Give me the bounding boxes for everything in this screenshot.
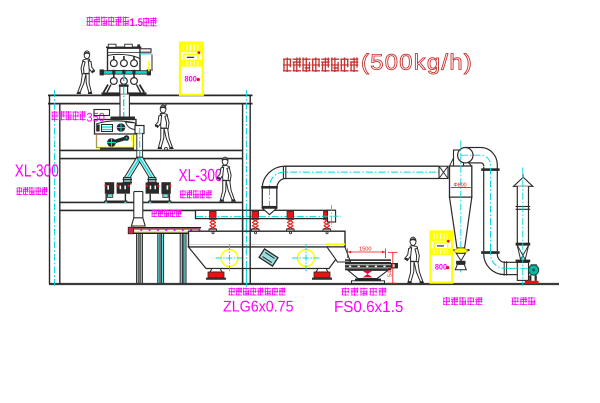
svg-text:350: 350 [87, 111, 105, 125]
svg-text:ZLG6x0.75: ZLG6x0.75 [223, 299, 294, 316]
svg-text:(500kg/h): (500kg/h) [361, 50, 473, 75]
svg-text:800: 800 [185, 74, 198, 83]
svg-text:800: 800 [435, 263, 448, 272]
svg-text:XL-300: XL-300 [15, 161, 59, 181]
svg-text:FS0.6x1.5: FS0.6x1.5 [334, 299, 403, 316]
svg-text:XL-300: XL-300 [179, 165, 223, 185]
svg-text:1500: 1500 [359, 247, 371, 253]
svg-text:1.5: 1.5 [130, 17, 143, 29]
svg-text:540: 540 [387, 268, 393, 277]
svg-text:Φ800: Φ800 [454, 183, 467, 189]
